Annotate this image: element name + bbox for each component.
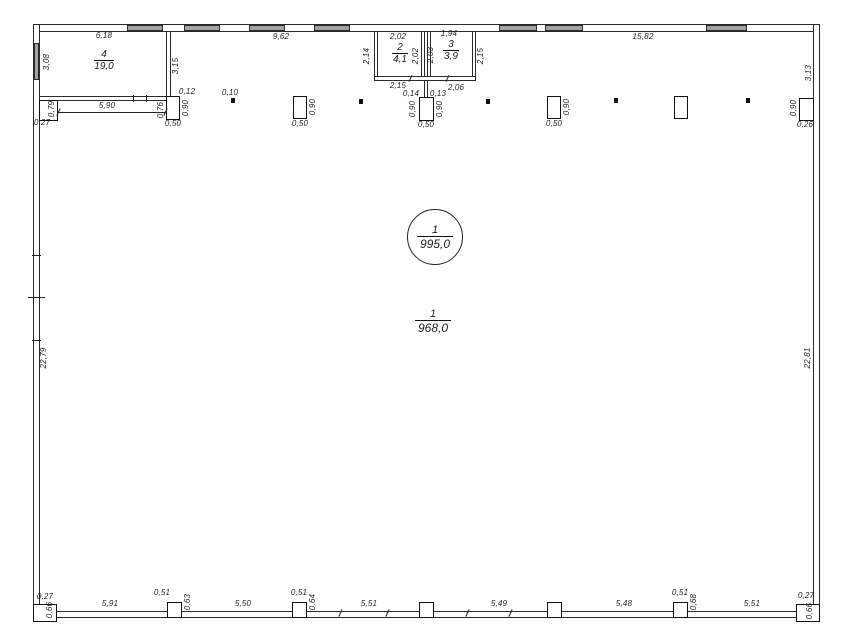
room2-area: 4,1 [393,54,407,66]
window-top-4 [314,25,350,31]
room4-number: 4 [101,49,107,60]
room-label-1-sub: 1 968,0 [415,308,451,335]
window-top-2 [184,25,220,31]
window-top-1 [127,25,163,31]
pilaster-2 [166,96,180,120]
dim-b-bay5: 5,48 [616,600,632,608]
pilaster-3 [293,96,307,119]
dim-top-room4: 6,18 [96,32,112,40]
pilaster-6 [674,96,688,119]
dim-pr-h: 0,90 [790,100,798,116]
dim-p4-w: 0,50 [418,121,434,129]
dim-b-bay2: 5,50 [235,600,251,608]
dim-room3-right: 2,15 [477,48,485,64]
room3-area: 3,9 [444,51,458,63]
dim-p2-h: 0,90 [182,100,190,116]
dim-b-c3-h: 0,64 [309,594,317,610]
dim-b-bay4: 5,49 [491,600,507,608]
dim-p5-h: 0,90 [563,99,571,115]
dim-b-corner-r-h: 0,66 [806,603,814,619]
window-top-7 [706,25,747,31]
dim-b-corner-l-w: 0,27 [37,593,53,601]
dim-b-c2-h: 0,63 [184,594,192,610]
room4-area: 19,0 [94,61,113,73]
bottom-column-3 [292,602,307,618]
column-dot-4 [614,98,618,103]
dim-p2-w: 0,50 [165,120,181,128]
dim-p3-w: 0,50 [292,120,308,128]
dim-corner-col-h: 0,79 [48,101,56,117]
room4-door-tick-1 [133,95,134,102]
dim-b-corner-r-w: 0,27 [798,592,814,600]
dim-pr-w: 0,26 [797,121,813,129]
pilaster-right-wall [799,98,814,121]
room-label-3: 3 3,9 [443,39,459,63]
window-top-6 [545,25,583,31]
column-dot-1 [231,98,235,103]
column-dot-3 [486,99,490,104]
room3-number: 3 [448,39,454,50]
pilaster-5 [547,96,561,119]
room4-door-tick-2 [146,95,147,102]
dim-room2-right: 2,02 [412,48,420,64]
column-dot-5 [746,98,750,103]
hall-sub-number: 1 [430,308,436,320]
dim-top-right: 15,82 [632,33,653,41]
hall-area: 995,0 [420,237,450,251]
room-label-4: 4 19,0 [94,49,114,73]
dim-stem-right: 0,13 [430,90,446,98]
window-top-3 [249,25,285,31]
hall-sub-area: 968,0 [418,321,448,335]
bottom-column-6 [673,602,688,618]
dim-b-c2-w: 0,51 [154,589,170,597]
stem-wall [424,80,428,98]
dim-top-mid: 9,62 [273,33,289,41]
rooms23-wall-left [374,31,378,81]
dim-left-wall: 22,79 [40,347,48,368]
dim-p5-w: 0,50 [546,120,562,128]
bottom-column-4 [419,602,434,618]
dim-right-wall: 22,81 [804,347,812,368]
dim-p4-hr: 0,90 [436,101,444,117]
pilaster-4 [419,97,434,121]
bottom-column-2 [167,602,182,618]
window-left [34,43,39,80]
left-wall-tick-3 [32,340,41,341]
wall-right [813,24,820,618]
dim-b-corner-l-h: 0,66 [46,602,54,618]
dim-room2-top: 2,02 [390,33,406,41]
dim-b-bay1: 5,91 [102,600,118,608]
hall-number: 1 [432,224,438,236]
window-top-5 [499,25,537,31]
dim-dot1: 0,10 [222,89,238,97]
dim-b-bay6: 5,51 [744,600,760,608]
dim-b-c3-w: 0,51 [291,589,307,597]
room-label-2: 2 4,1 [392,42,408,66]
dim-room3-bottom: 2,06 [448,84,464,92]
left-wall-tick-1 [32,255,41,256]
dim-b-c6-w: 0,51 [672,589,688,597]
dim-room3-top: 1,94 [441,30,457,38]
dim-corner-col-w: 0,27 [34,119,50,127]
dim-room2-bottom: 2,15 [390,82,406,90]
dim-room3-left: 2,03 [427,47,435,63]
dim-room2-left: 2,14 [363,48,371,64]
dim-left-window: 3,08 [43,54,51,70]
left-wall-tick-2 [28,297,45,298]
floor-plan: 6,18 9,62 15,82 3,08 22,79 3,13 22,81 3,… [0,0,849,640]
dim-line-room4-bottom [58,112,166,113]
room-label-1-circle: 1 995,0 [407,209,463,265]
dim-stem-left: 0,14 [403,90,419,98]
dim-room4-right: 3,15 [172,58,180,74]
bottom-column-5 [547,602,562,618]
dim-p2-left: 0,76 [157,102,165,118]
dim-b-bay3: 5,51 [361,600,377,608]
dim-p4-hl: 0,90 [409,101,417,117]
dim-p3-h: 0,90 [309,99,317,115]
room2-wall-right [421,31,425,81]
column-dot-2 [359,99,363,104]
dim-b-c6-h: 0,68 [690,594,698,610]
dim-right-upper: 3,13 [805,65,813,81]
dim-p2-gap: 0,12 [179,88,195,96]
dim-room4-bottom: 5,90 [99,102,115,110]
room2-number: 2 [397,42,403,53]
